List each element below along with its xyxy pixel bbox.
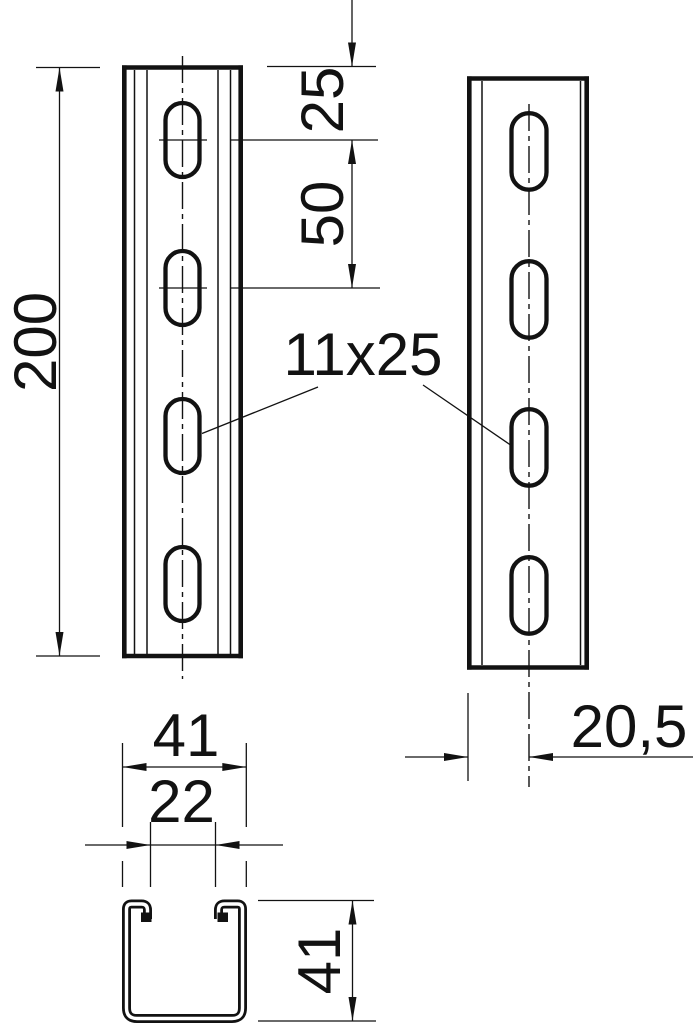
- dim-label-25: 25: [289, 67, 356, 134]
- arrowhead: [123, 763, 147, 771]
- arrowhead: [127, 841, 151, 849]
- dimension-pitch-50: 50: [230, 140, 380, 288]
- technical-drawing-canvas: 200 25 50 11x25: [0, 0, 693, 1024]
- dimension-end-25: 25: [230, 0, 378, 140]
- arrowhead: [444, 753, 468, 761]
- dim-label-11x25: 11x25: [283, 321, 442, 388]
- dim-label-41-height: 41: [286, 928, 353, 995]
- dim-label-20-5: 20,5: [571, 693, 688, 760]
- arrowhead: [529, 753, 553, 761]
- arrowhead: [56, 68, 64, 92]
- side-view: [467, 76, 589, 787]
- dim-label-22: 22: [148, 768, 215, 835]
- dim-label-50: 50: [289, 181, 356, 248]
- arrowhead: [348, 264, 356, 288]
- arrowhead: [348, 43, 356, 67]
- arrowhead: [349, 901, 357, 925]
- arrowhead: [348, 140, 356, 164]
- front-view: [122, 56, 243, 679]
- dimension-length-200: 200: [2, 68, 100, 657]
- dimension-opening-22: 22: [85, 768, 283, 887]
- slot-size-label: 11x25: [202, 321, 512, 446]
- dim-label-200: 200: [2, 292, 69, 392]
- arrowhead: [222, 763, 246, 771]
- arrowhead: [216, 841, 240, 849]
- arrowhead: [56, 632, 64, 656]
- dimension-offset-20-5: 20,5: [405, 693, 693, 781]
- leader-line: [202, 387, 318, 434]
- lip-end-face: [218, 913, 229, 923]
- dim-label-41-width: 41: [153, 702, 220, 769]
- dimension-height-41: 41: [258, 901, 376, 1022]
- arrowhead: [349, 997, 357, 1021]
- lip-end-face: [141, 913, 152, 923]
- cross-section-view: [127, 904, 243, 1019]
- strut-channel-drawing: 200 25 50 11x25: [0, 0, 693, 1024]
